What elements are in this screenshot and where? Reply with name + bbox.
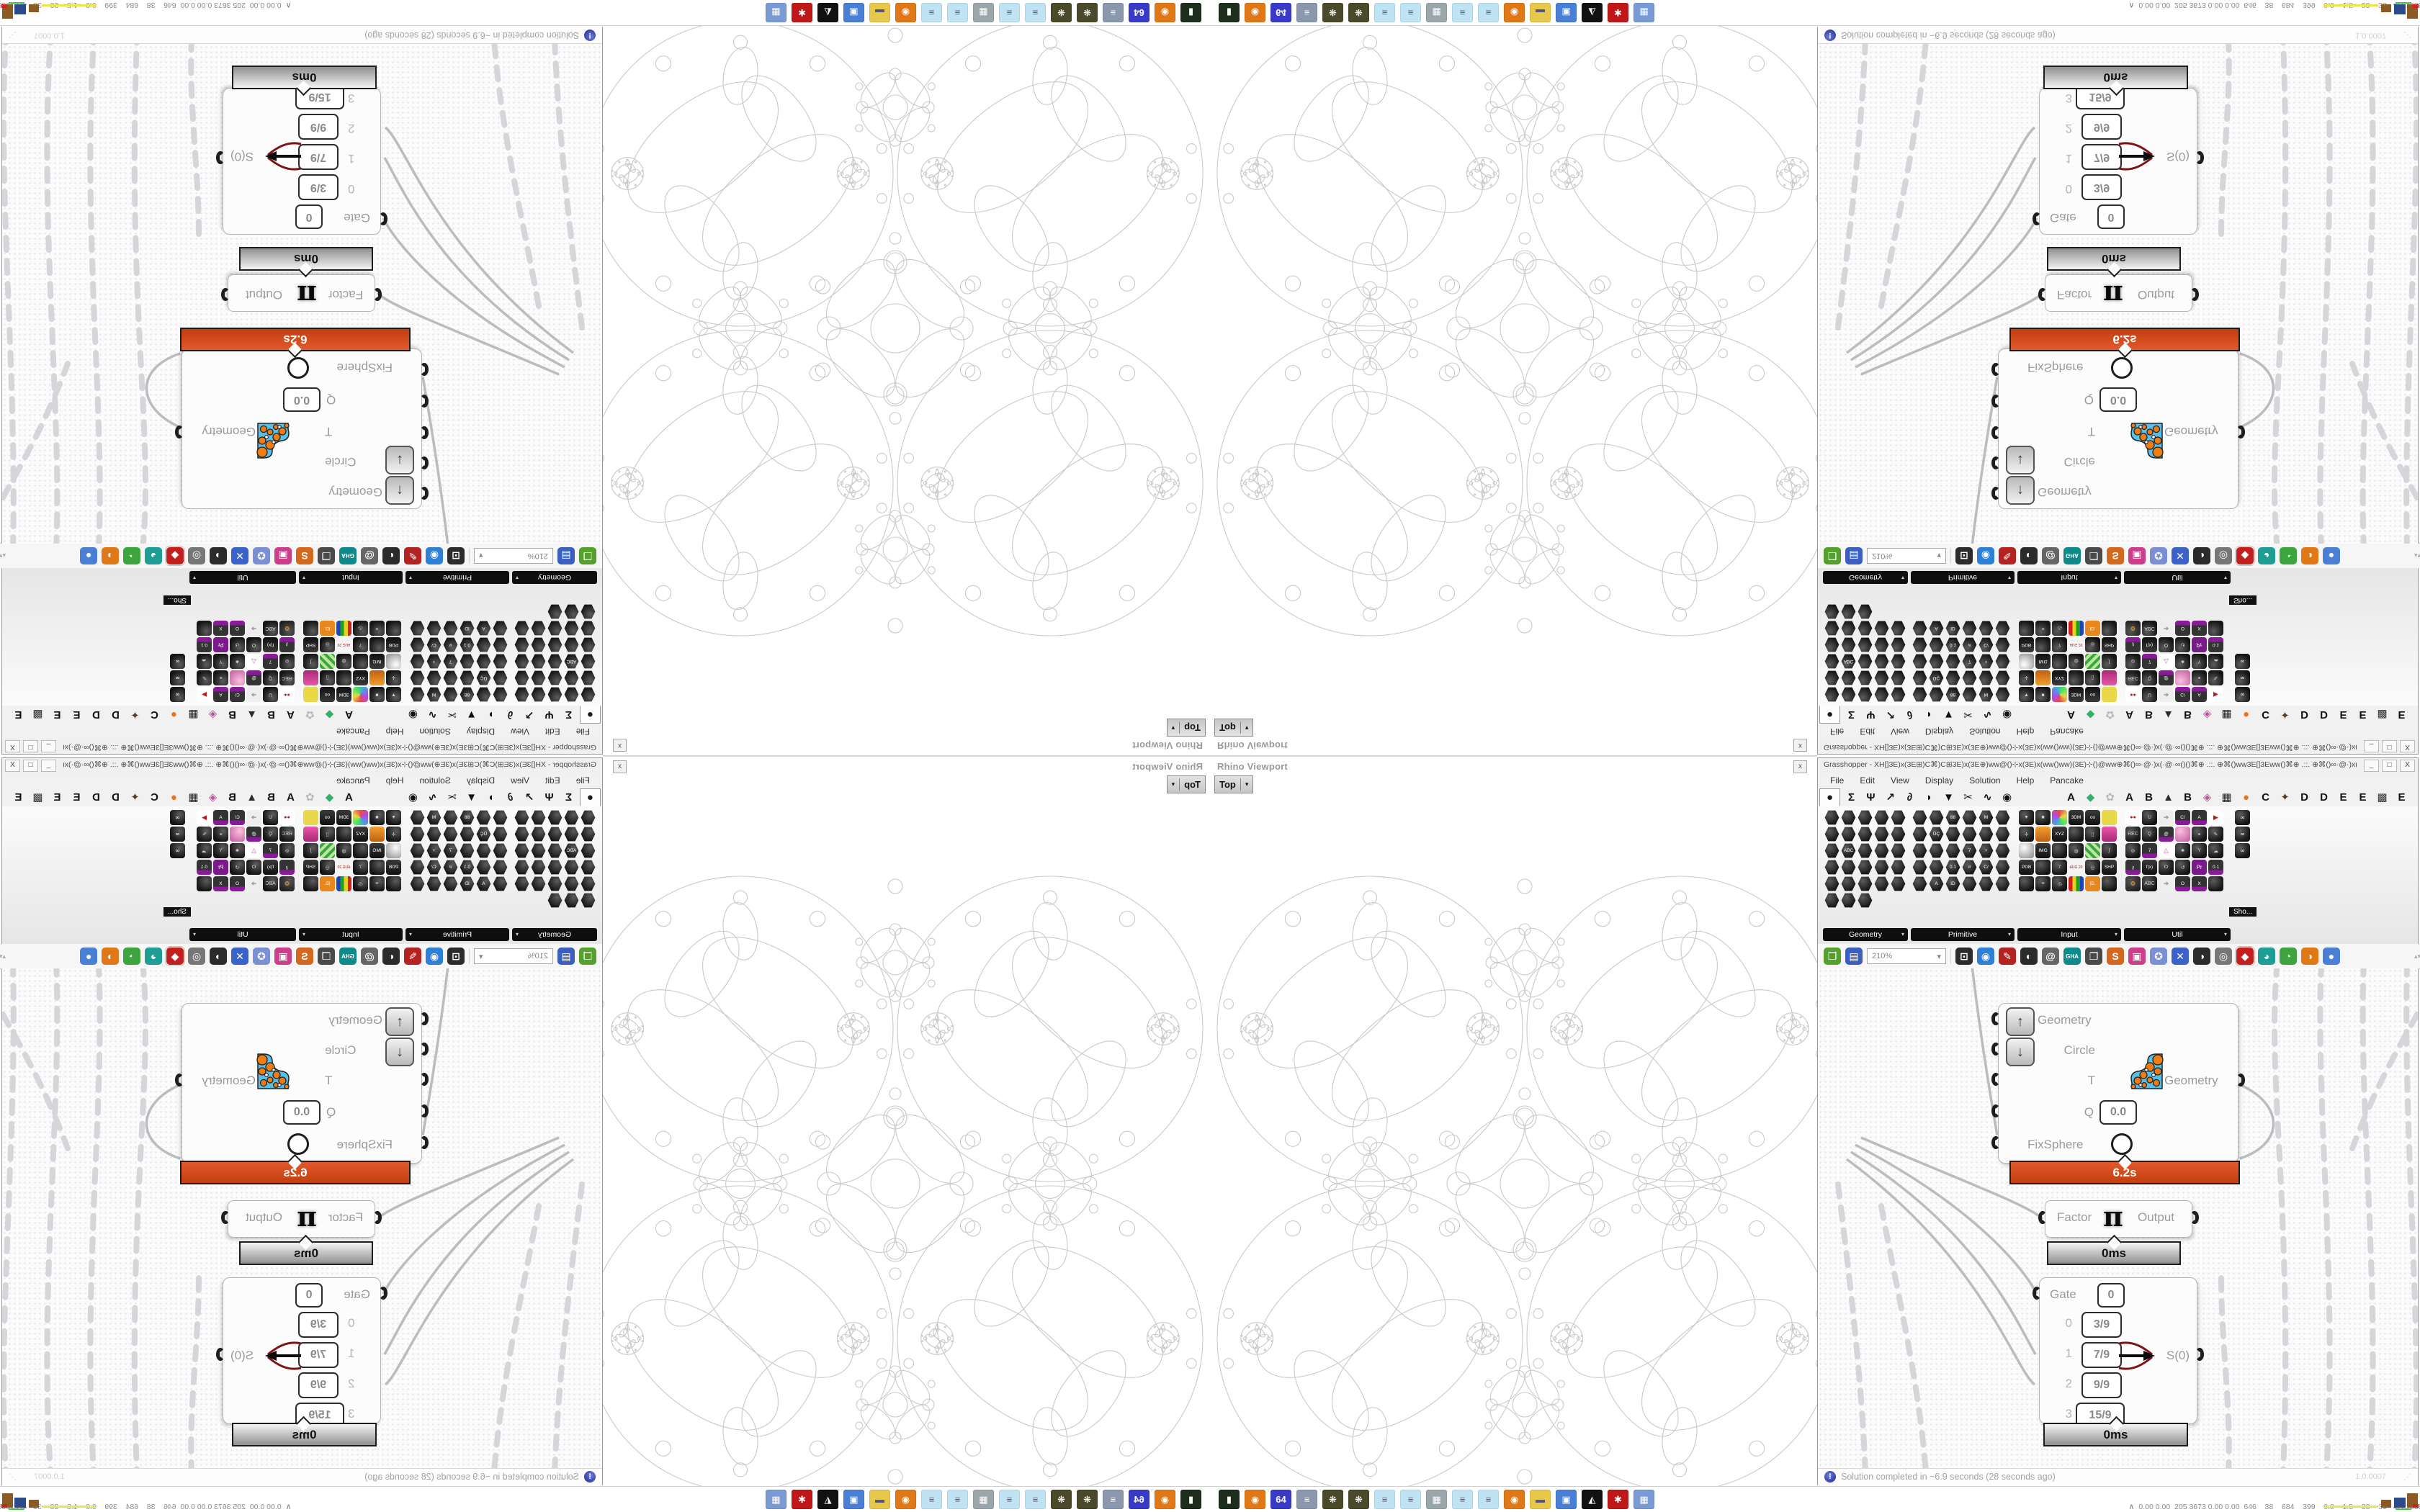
tab-intersect[interactable]: ✂ [442,708,462,721]
palette-group-label[interactable]: Util▾ [2124,928,2231,941]
draw-order-button[interactable]: ✎ [1999,948,2016,965]
component-icon-pal[interactable]: ❂ [2125,621,2141,636]
component-icon-hx[interactable] [1841,621,1856,636]
tab-sets[interactable]: Ψ [1861,709,1881,721]
component-icon-chp[interactable]: 7 [263,843,278,858]
minimize-button[interactable]: _ [41,740,56,752]
tab-display[interactable]: ◉ [403,708,423,721]
open-file-button[interactable]: ❒ [1824,948,1841,965]
component-icon-sqi[interactable]: ≡ [369,621,385,636]
galapagos-button[interactable]: ✕ [2172,547,2189,564]
component-icon-chp[interactable]: @ [2159,827,2174,842]
goggles1-icon[interactable]: ∞ [170,810,185,825]
palette-group-label[interactable]: Primitive▾ [1911,571,2015,584]
output-port-s0[interactable] [2195,1348,2204,1361]
component-stream-gate[interactable]: Gate 0 03/917/929/9315/9 S(0) [223,1277,381,1424]
tab-transform[interactable]: ∿ [1978,708,1997,721]
component-icon-pr[interactable]: Pr [2192,860,2207,875]
tab-plugin-d2[interactable]: D [86,791,106,804]
component-icon-hx[interactable] [410,876,425,891]
tab-plugin-puppet[interactable]: ✿ [2100,708,2120,721]
component-icon-ch[interactable]: oo [320,810,335,825]
zoom-level-select[interactable]: 210% ▾ [474,948,553,964]
palette-more-label[interactable]: Sho... [163,907,191,917]
menu-item-help[interactable]: Help [378,775,412,786]
component-icon-ch[interactable]: oo [2085,687,2100,702]
collapse-down-button[interactable]: ↓ [2006,1038,2035,1066]
security-icon[interactable]: ✱ [792,3,812,22]
component-icon-cal[interactable]: AUG 20 [2069,860,2084,875]
component-icon-hx[interactable] [410,687,425,702]
component-icon-hx[interactable] [547,654,563,669]
resize-grip[interactable]: ⋰ [8,30,17,40]
input-port-q[interactable] [420,1104,429,1117]
component-icon-sqo[interactable] [2035,827,2051,842]
finder-button[interactable]: S [296,948,313,965]
component-icon-hx[interactable] [531,876,546,891]
component-icon-sqi[interactable]: ◍ [336,843,351,858]
component-icon-hx[interactable] [1857,843,1873,858]
component-icon-sqi[interactable]: Q [263,670,278,685]
component-icon-sqi[interactable]: ∫ [303,843,318,858]
component-icon-hx[interactable] [1824,687,1839,702]
component-icon-sqi[interactable]: ■ [2035,810,2051,825]
component-icon-chp[interactable]: X [2192,621,2207,636]
tab-transform[interactable]: ∿ [423,791,442,804]
viewport-tab-top[interactable]: Top ▾ [1167,719,1206,737]
tab-plugin-puppet[interactable]: ✿ [300,708,320,721]
component-icon-hx[interactable] [443,687,458,702]
component-icon-ball[interactable] [2019,654,2034,669]
publish-button[interactable]: @ [361,948,378,965]
component-icon-hx[interactable] [443,810,458,825]
component-icon-sqi[interactable]: ⚭ [213,827,228,842]
tab-plugin-e2[interactable]: E [2353,709,2372,721]
component-icon-flask[interactable]: △ [246,654,261,669]
component-icon-hxt[interactable]: 7 [1962,654,1977,669]
tab-plugin-d1[interactable]: D [2295,709,2314,721]
component-icon-hx[interactable] [426,876,442,891]
component-icon-sqi[interactable] [2035,860,2051,875]
component-icon-hx[interactable] [1874,876,1889,891]
easel-icon[interactable]: ∞ [2235,843,2250,858]
component-icon-arrw[interactable]: ➔ [246,810,261,825]
component-icon-sqi[interactable]: ⚭ [2192,670,2207,685]
component-icon-hx[interactable] [564,621,579,636]
output-port-s0[interactable] [216,151,225,164]
firefox-icon[interactable]: ◉ [1245,1490,1265,1509]
minimize-button[interactable]: _ [41,760,56,772]
component-icon-hx[interactable] [493,876,508,891]
component-icon-hx[interactable] [410,843,425,858]
tab-plugin-e3[interactable]: E [9,791,28,804]
chevron-down-icon[interactable]: ▾ [1172,780,1175,788]
preview-green-button[interactable]: ◔ [123,948,140,965]
menu-item-view[interactable]: View [1883,727,1917,737]
component-icon-chp[interactable]: ⚷ [279,637,295,652]
component-icon-hxt[interactable]: ÜÇ [1929,670,1944,685]
script-icon[interactable]: ≡ [1103,3,1124,22]
component-icon-chp[interactable]: O [230,621,245,636]
preview-settings-button[interactable]: ◉ [426,547,443,564]
component-icon-hx[interactable] [1824,843,1839,858]
component-icon-hx[interactable] [1874,621,1889,636]
component-icon-chp[interactable]: C/ [230,810,245,825]
component-icon-hxt[interactable]: 0.1 [460,860,475,875]
component-icon-flask[interactable]: △ [2159,843,2174,858]
component-icon-cho[interactable]: ID. [2085,876,2100,891]
component-icon-hx[interactable] [581,654,596,669]
notepad2-icon[interactable]: ≡ [1400,1490,1421,1509]
goggles2-icon[interactable]: ∞ [170,827,185,842]
component-icon-hx[interactable] [547,621,563,636]
component-icon-hx[interactable] [1995,827,2010,842]
component-icon-sqi[interactable]: 7 [2052,860,2067,875]
component-icon-hx[interactable] [1995,843,2010,858]
tab-plugin-a2[interactable]: A [2120,709,2139,721]
fixsphere-toggle[interactable] [287,357,309,379]
component-icon-sqp[interactable] [2102,670,2117,685]
component-icon-sqi[interactable]: Q [263,827,278,842]
component-icon-hx[interactable] [531,637,546,652]
output-port-s0[interactable] [2195,151,2204,164]
component-icon-sqi[interactable]: ◍ [2069,843,2084,858]
component-icon-arrw[interactable]: ➔ [2159,876,2174,891]
component-icon-hxt[interactable]: 0.1 [1945,860,1960,875]
tab-plugin-b1[interactable]: B [2139,791,2159,804]
component-icon-hx[interactable] [547,810,563,825]
maximize-button[interactable]: □ [2382,740,2397,752]
firefox-icon[interactable]: ◉ [1155,1490,1175,1509]
tab-plugin-a2[interactable]: A [2120,791,2139,804]
component-icon-hx[interactable] [493,621,508,636]
component-icon-sqi[interactable]: ◍ [336,654,351,669]
tab-curve[interactable]: ∂ [501,709,520,721]
component-pi-expression[interactable]: Factor π Output [2045,274,2192,312]
input-port-geometry[interactable] [420,1012,429,1025]
component-icon-sqi[interactable]: ∫ [2102,654,2117,669]
tab-plugin-ellipse[interactable]: ● [2236,709,2256,721]
input-port-q[interactable] [1991,1104,2000,1117]
component-icon-sqi[interactable] [369,860,385,875]
component-icon-sqi[interactable] [2035,637,2051,652]
tab-surface[interactable]: ◗ [1919,709,1939,721]
component-icon-hx[interactable] [1874,670,1889,685]
component-icon-hx[interactable] [514,654,529,669]
component-icon-hx[interactable] [1824,637,1839,652]
component-icon-hx[interactable] [1929,637,1944,652]
obscure-components-button[interactable]: ◐ [382,948,400,965]
preview-green-button[interactable]: ◔ [2280,547,2297,564]
component-icon-hx[interactable] [1912,810,1927,825]
zoom-extents-button[interactable]: ⊡ [1955,948,1973,965]
save-file-button[interactable]: ▤ [1845,547,1863,564]
resize-grip[interactable]: ⋰ [2403,30,2412,40]
collapse-down-button[interactable]: ↓ [385,1038,414,1066]
component-icon-sqi[interactable] [353,654,368,669]
component-icon-chp[interactable]: ⚷ [2125,637,2141,652]
tab-surface[interactable]: ◗ [1919,791,1939,804]
component-icon-hx[interactable] [514,827,529,842]
component-icon-hxt[interactable]: 0.1 [1945,637,1960,652]
component-icon-sqi[interactable]: REC [279,827,295,842]
gem-preview-button[interactable]: ◆ [2236,547,2254,564]
component-icon-ch[interactable]: f(x) [263,637,278,652]
component-icon-ballp[interactable] [230,827,245,842]
component-icon-hxt[interactable]: C/ [426,637,442,652]
gate-row-value[interactable]: 3/9 [2081,174,2122,200]
toolbar-overflow-scroll[interactable]: ▴▾ [2414,953,2420,959]
palette-more-label[interactable]: Sho... [163,595,191,605]
folder-icon[interactable]: ▬ [869,1490,890,1509]
component-icon-sqi[interactable]: ◎ [2085,860,2100,875]
tab-mesh[interactable]: ▼ [462,791,481,804]
draw-order-button[interactable]: ✎ [1999,547,2016,564]
component-icon-sqi[interactable]: ▼ [386,810,401,825]
component-icon-hx[interactable] [1824,893,1839,908]
component-icon-hx[interactable] [581,621,596,636]
component-icon-rain[interactable] [336,621,351,636]
zoom-extents-button[interactable]: ⊡ [1955,547,1973,564]
monitor-icon[interactable]: ▦ [973,1490,994,1509]
preview-orange-button[interactable]: ◑ [102,948,119,965]
monitor-icon[interactable]: ▦ [1426,1490,1447,1509]
component-icon-hx[interactable] [1962,827,1977,842]
hopper2-icon[interactable]: ❋ [1348,3,1369,22]
output-port-geometry[interactable] [175,426,184,438]
component-icon-hx[interactable] [531,827,546,842]
component-icon-sqy[interactable] [303,810,318,825]
fixsphere-toggle[interactable] [2111,357,2133,379]
component-icon-hx[interactable] [514,860,529,875]
component-icon-hx[interactable] [1891,654,1906,669]
mediaplayer-icon[interactable]: ▣ [1556,3,1577,22]
component-icon-hx[interactable] [1841,827,1856,842]
component-icon-hx[interactable] [1891,810,1906,825]
palette-group-label[interactable]: Primitive▾ [1911,928,2015,941]
tab-plugin-d1[interactable]: D [2295,791,2314,804]
menu-item-pancake[interactable]: Pancake [328,727,378,737]
component-icon-rain[interactable] [2069,876,2084,891]
component-icon-ch[interactable]: PDB [2019,637,2034,652]
collapse-down-button[interactable]: ↓ [385,446,414,474]
component-icon-hx[interactable] [410,654,425,669]
expand-up-button[interactable]: ↑ [385,1007,414,1036]
gate-row-value[interactable]: 3/9 [2081,1312,2122,1338]
component-icon-sqi[interactable]: ▯ [2085,670,2100,685]
viewport-tab-top[interactable]: Top ▾ [1214,719,1253,737]
palette-group-label[interactable]: Util▾ [189,928,296,941]
component-icon-hx[interactable] [1929,687,1944,702]
component-icon-hx[interactable] [460,654,475,669]
preview-blue-button[interactable]: ● [80,547,97,564]
component-icon-chp[interactable]: ⚷ [279,860,295,875]
component-icon-ch[interactable]: PDB [2019,860,2034,875]
component-icon-sqi[interactable] [2019,876,2034,891]
component-icon-hx[interactable] [493,810,508,825]
tab-plugin-e2[interactable]: E [48,791,67,804]
calculator-icon[interactable]: ▦ [1633,1490,1654,1509]
component-icon-arrw[interactable]: ➔ [246,687,261,702]
component-icon-hx[interactable] [531,670,546,685]
tab-plugin-grid[interactable]: ▩ [28,791,48,804]
monitor-icon[interactable]: ▦ [1426,3,1447,22]
grasshopper-title-bar[interactable]: Grasshopper - XH[]3E)x(3E⊞)C⌘)C⊞3E)x(3E⊕… [1818,739,2418,754]
component-icon-hx[interactable] [531,654,546,669]
tab-plugin-e3[interactable]: E [2392,709,2411,721]
component-icon-sqy[interactable] [2102,810,2117,825]
component-icon-sqi[interactable]: ▼ [386,687,401,702]
grasshopper-canvas[interactable]: ↑ ↓ Geometry Circle T Q FixSphere 0.0 [2,44,602,544]
calculator-icon[interactable]: ▦ [766,1490,786,1509]
notepad3-icon[interactable]: ≡ [947,1490,968,1509]
component-icon-sqi[interactable]: ◷ [353,876,368,891]
component-icon-hxt[interactable]: # [443,637,458,652]
gate-row-value[interactable]: 9/9 [2081,114,2122,140]
component-icon-cal[interactable]: AUG 20 [2069,637,2084,652]
terminal-icon[interactable]: ▮ [1219,3,1240,22]
input-port-gate[interactable] [2033,1287,2041,1300]
notepad4-icon[interactable]: ≡ [1478,1490,1499,1509]
component-icon-hx[interactable] [1857,670,1873,685]
component-icon-hx[interactable] [564,687,579,702]
tab-plugin-b2[interactable]: B [2178,791,2197,804]
finder-button[interactable]: S [2107,547,2124,564]
component-icon-hx[interactable] [564,604,579,619]
tab-plugin-a2[interactable]: A [281,709,300,721]
component-icon-hxt[interactable]: ÜÇ [476,827,491,842]
tab-plugin-b1[interactable]: B [2139,709,2159,721]
component-icon-cho[interactable]: ID. [320,621,335,636]
component-icon-hxt[interactable]: A [1929,876,1944,891]
menu-item-display[interactable]: Display [1917,727,1961,737]
component-icon-ball[interactable] [386,654,401,669]
component-icon-hxt[interactable]: ID [1945,876,1960,891]
component-icon-sqi[interactable]: ♣ [2175,843,2190,858]
component-icon-sqi[interactable]: ◍ [2069,654,2084,669]
tab-plugin-c[interactable]: C [2256,709,2275,721]
component-icon-hx[interactable] [1824,670,1839,685]
notepad1-icon[interactable]: ≡ [1374,1490,1395,1509]
palette-group-label[interactable]: Util▾ [189,571,296,584]
component-icon-sqg[interactable] [2085,843,2100,858]
component-icon-hx[interactable] [564,860,579,875]
q-value-box[interactable]: 0.0 [283,387,321,412]
component-icon-sqi[interactable] [2208,876,2223,891]
component-pi-expression[interactable]: Factor π Output [228,274,375,312]
component-icon-hx[interactable] [443,621,458,636]
component-icon-sqg[interactable] [320,843,335,858]
component-icon-sqi[interactable]: ✎ [2208,670,2223,685]
component-icon-hxt[interactable]: + [426,843,442,858]
component-icon-cherry[interactable]: ●● [279,810,295,825]
component-icon-sqi[interactable]: ☁ [2208,843,2223,858]
input-port-circle[interactable] [1991,456,2000,469]
component-icon-hx[interactable] [426,621,442,636]
component-icon-chp[interactable]: A [2192,687,2207,702]
zoom-level-select[interactable]: 210% ▾ [474,548,553,564]
component-icon-chp[interactable]: A [213,810,228,825]
tab-intersect[interactable]: ✂ [1958,791,1978,804]
component-icon-hxt[interactable]: 88 [1945,810,1960,825]
wireframe-preview-button[interactable]: ◎ [2215,547,2232,564]
component-icon-sqi[interactable]: ↺ [2175,637,2190,652]
component-icon-hx[interactable] [581,860,596,875]
input-port-factor[interactable] [2038,288,2047,301]
close-icon[interactable]: x [613,739,627,752]
remote-control-button[interactable]: ✪ [253,948,270,965]
component-icon-hx[interactable] [1912,654,1927,669]
gate-value-box[interactable]: 0 [2097,204,2125,229]
component-pi-expression[interactable]: Factor π Output [228,1200,375,1238]
menu-item-help[interactable]: Help [2009,727,2043,737]
component-icon-cal[interactable]: AUG 20 [336,637,351,652]
notepad2-icon[interactable]: ≡ [1400,3,1421,22]
component-icon-hx[interactable] [476,637,491,652]
expand-up-button[interactable]: ↑ [385,476,414,505]
tab-plugin-bird[interactable]: ✦ [2275,791,2295,804]
component-icon-hxt[interactable]: ID [460,621,475,636]
component-stream-gate[interactable]: Gate 0 03/917/929/9315/9 S(0) [2039,88,2197,235]
component-circlepack[interactable]: ↑ ↓ Geometry Circle T Q FixSphere 0.0 [181,1003,422,1164]
shaded-preview-button[interactable]: ◑ [210,948,227,965]
component-icon-hx[interactable] [1912,827,1927,842]
component-circlepack[interactable]: ↑ ↓ Geometry Circle T Q FixSphere 0.0 [1998,1003,2238,1164]
remote-panel-button[interactable]: ❐ [318,547,335,564]
draw-order-button[interactable]: ✎ [404,547,421,564]
component-icon-hxt[interactable]: ID [1945,621,1960,636]
menu-item-edit[interactable]: Edit [537,775,568,786]
collapse-down-button[interactable]: ↓ [2006,446,2035,474]
gate-row-value[interactable]: 7/9 [298,144,339,170]
component-icon-sqi[interactable]: U [263,687,278,702]
component-icon-ch[interactable]: f(x) [2142,860,2157,875]
gha-assembly-button[interactable]: GHA [2063,547,2081,564]
component-icon-hx[interactable] [1995,654,2010,669]
menu-item-edit[interactable]: Edit [537,727,568,737]
tab-plugin-ellipse[interactable]: ● [164,791,184,804]
preview-orange-button[interactable]: ◑ [2301,948,2318,965]
tab-params[interactable]: ● [580,788,601,806]
component-icon-arrw[interactable]: ➔ [246,621,261,636]
component-icon-hx[interactable] [493,637,508,652]
component-icon-hx[interactable] [1945,654,1960,669]
component-icon-hx[interactable] [1874,687,1889,702]
component-icon-hx[interactable] [410,621,425,636]
component-icon-sqi[interactable]: O [2159,860,2174,875]
calculator-icon[interactable]: ▦ [1633,3,1654,22]
component-icon-hx[interactable] [547,670,563,685]
component-icon-hx[interactable] [581,810,596,825]
tab-intersect[interactable]: ✂ [1958,708,1978,721]
wolf-icon[interactable]: ◭ [817,1490,838,1509]
output-port-geometry[interactable] [175,1074,184,1086]
preview-teal-button[interactable]: ◕ [2258,948,2275,965]
hopper1-icon[interactable]: ❋ [1077,3,1098,22]
chevron-up-icon[interactable]: ∧ [286,1,292,9]
component-icon-ch[interactable]: XYZ [353,827,368,842]
tab-plugin-puppet[interactable]: ✿ [300,791,320,804]
component-icon-hx[interactable] [514,637,529,652]
expand-up-button[interactable]: ↑ [2006,1007,2035,1036]
preview-settings-button[interactable]: ◉ [1977,547,1994,564]
tab-surface[interactable]: ◗ [481,709,501,721]
folder-icon[interactable]: ▬ [1530,1490,1551,1509]
component-icon-hx[interactable] [1857,654,1873,669]
component-icon-sqi[interactable]: Y [213,654,228,669]
input-port-geometry[interactable] [1991,1012,2000,1025]
tab-intersect[interactable]: ✂ [442,791,462,804]
